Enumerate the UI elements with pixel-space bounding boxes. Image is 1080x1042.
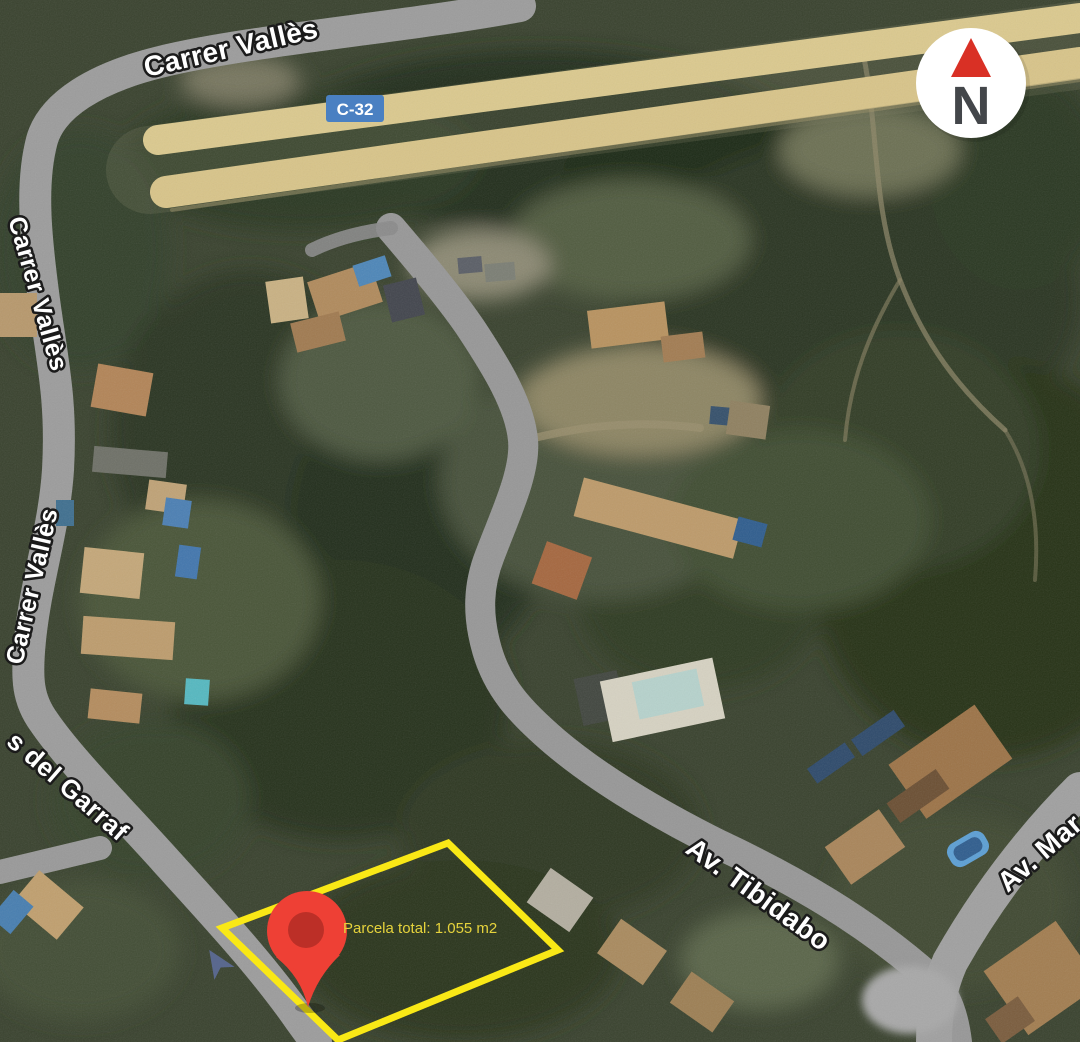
map-canvas[interactable]: Carrer Vallès Carrer Vallès Carrer Vallè… (0, 0, 1080, 1042)
pin-shadow (295, 1003, 325, 1013)
satellite-grain-texture (0, 0, 1080, 1042)
compass-letter: N (952, 76, 991, 136)
route-badge-text: C-32 (337, 100, 374, 119)
route-badge-c32: C-32 (326, 95, 384, 122)
parcel-area-label: Parcela total: 1.055 m2 (343, 920, 497, 937)
pin-inner-dot (288, 912, 324, 948)
satellite-map: Carrer Vallès Carrer Vallès Carrer Vallè… (0, 0, 1080, 1042)
